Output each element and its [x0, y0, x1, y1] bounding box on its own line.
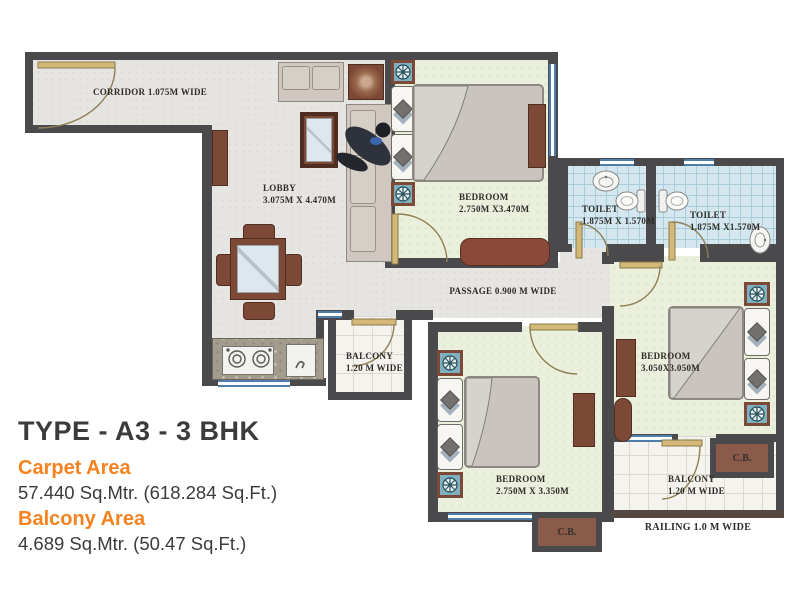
- toilet1-label: TOILET 1.875M X 1.570M: [582, 203, 655, 227]
- balcony-area-value: 4.689 Sq.Mtr. (50.47 Sq.Ft.): [18, 533, 277, 555]
- bedroom2-dims: 2.750M X 3.350M: [496, 485, 569, 497]
- bedside-table: [744, 308, 770, 356]
- window: [318, 311, 342, 318]
- railing-label: RAILING 1.0 M WIDE: [612, 522, 784, 534]
- wardrobe: [616, 339, 636, 397]
- lobby-name: LOBBY: [263, 182, 336, 194]
- wall: [202, 125, 212, 386]
- unit-info: TYPE - A3 - 3 BHK Carpet Area 57.440 Sq.…: [18, 416, 277, 559]
- wall: [602, 306, 614, 522]
- hob: [222, 346, 274, 375]
- bed: [464, 376, 540, 468]
- sofa-cushion: [282, 66, 310, 90]
- railing-wall: [612, 510, 784, 518]
- bedroom1-dims: 2.750M X3.470M: [459, 203, 529, 215]
- toilet1-dims: 1.875M X 1.570M: [582, 215, 655, 227]
- toilet1-name: TOILET: [582, 203, 655, 215]
- balcony-area-label: Balcony Area: [18, 508, 277, 531]
- bench: [460, 238, 550, 266]
- wall: [558, 158, 784, 166]
- lamp: [747, 369, 767, 389]
- wardrobe: [528, 104, 546, 168]
- window: [549, 64, 556, 156]
- corridor-label: CORRIDOR 1.075M WIDE: [55, 86, 245, 98]
- sofa-cushion: [350, 110, 376, 156]
- sofa-cushion: [350, 158, 376, 204]
- bedside-table: [437, 378, 463, 422]
- lamp: [393, 147, 413, 167]
- cupboard-label: C.B.: [558, 527, 577, 538]
- toilet2-dims: 1.875M X1.570M: [690, 221, 760, 233]
- bedside-table: [437, 424, 463, 470]
- bedroom3-name: BEDROOM: [641, 350, 700, 362]
- floor-plan: C.B. C.B.: [0, 0, 800, 600]
- fan-tile: [744, 282, 770, 306]
- fan-tile: [437, 350, 463, 376]
- balcony2-name: BALCONY: [668, 473, 725, 485]
- unit-type-title: TYPE - A3 - 3 BHK: [18, 416, 277, 447]
- lamp: [393, 99, 413, 119]
- lamp: [440, 437, 460, 457]
- lamp: [440, 390, 460, 410]
- lobby-label: LOBBY 3.075M X 4.470M: [263, 182, 336, 206]
- coffee-table-top: [306, 118, 332, 162]
- bedroom1-label: BEDROOM 2.750M X3.470M: [459, 191, 529, 215]
- bed: [412, 84, 544, 182]
- balcony2-dims: 1.20 M WIDE: [668, 485, 725, 497]
- wall: [606, 244, 664, 252]
- fan-tile: [744, 402, 770, 426]
- ottoman: [614, 398, 632, 442]
- fan-tile: [391, 182, 415, 206]
- dining-chair: [243, 302, 275, 320]
- wall: [558, 244, 572, 252]
- balcony1-label: BALCONY 1.20 M WIDE: [346, 350, 403, 374]
- wall: [404, 310, 412, 400]
- window: [218, 380, 290, 387]
- kitchen-sink: [286, 344, 316, 377]
- toilet2-floor: [652, 162, 780, 248]
- bedroom2-name: BEDROOM: [496, 473, 569, 485]
- carpet-area-label: Carpet Area: [18, 457, 277, 480]
- cabinet: [212, 130, 228, 186]
- window: [684, 159, 714, 166]
- bedroom1-name: BEDROOM: [459, 191, 529, 203]
- carpet-area-value: 57.440 Sq.Mtr. (618.284 Sq.Ft.): [18, 482, 277, 504]
- side-table: [348, 64, 384, 100]
- balcony2-label: BALCONY 1.20 M WIDE: [668, 473, 725, 497]
- wall: [328, 392, 412, 400]
- bedside-table: [744, 358, 770, 400]
- wall: [396, 310, 433, 320]
- dining-table-top: [237, 245, 279, 293]
- window: [448, 513, 544, 520]
- wall: [602, 252, 664, 262]
- wardrobe: [573, 393, 595, 447]
- passage-label: PASSAGE 0.900 M WIDE: [423, 285, 583, 297]
- wall: [428, 322, 522, 332]
- wall: [25, 125, 212, 133]
- wall: [776, 252, 784, 518]
- wall: [700, 244, 784, 252]
- sofa-cushion: [312, 66, 340, 90]
- wall: [328, 310, 336, 400]
- balcony1-name: BALCONY: [346, 350, 403, 362]
- cupboard: C.B.: [532, 512, 602, 552]
- lamp: [747, 322, 767, 342]
- toilet2-name: TOILET: [690, 209, 760, 221]
- sofa-cushion: [350, 206, 376, 252]
- toilet2-label: TOILET 1.875M X1.570M: [690, 209, 760, 233]
- fan-tile: [437, 472, 463, 498]
- lobby-dims: 3.075M X 4.470M: [263, 194, 336, 206]
- wall: [700, 252, 784, 262]
- wall: [25, 52, 558, 60]
- wall: [558, 158, 568, 252]
- balcony1-dims: 1.20 M WIDE: [346, 362, 403, 374]
- bedroom3-dims: 3.050X3.050M: [641, 362, 700, 374]
- bedroom3-label: BEDROOM 3.050X3.050M: [641, 350, 700, 374]
- fan-tile: [391, 60, 415, 84]
- cupboard-label: C.B.: [733, 453, 752, 464]
- window: [600, 159, 634, 166]
- cupboard: C.B.: [710, 438, 774, 478]
- wall: [25, 52, 33, 133]
- bedroom2-label: BEDROOM 2.750M X 3.350M: [496, 473, 569, 497]
- dining-chair: [284, 254, 302, 286]
